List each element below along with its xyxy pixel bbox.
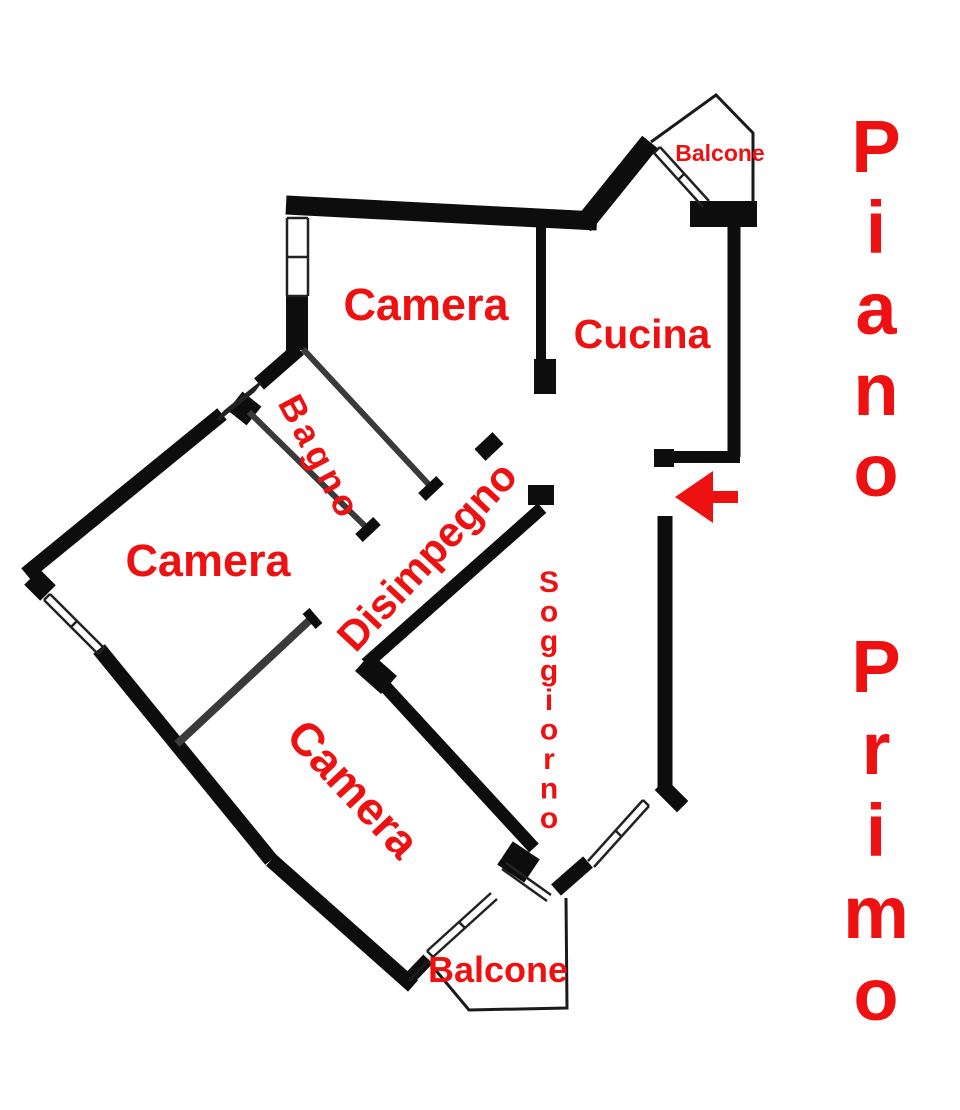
- label-camera-bottom: Camera: [277, 709, 430, 868]
- wall-nw-exterior-a: [259, 349, 299, 384]
- floor-plan-svg: Camera Cucina Balcone Bagno Camera Disim…: [0, 0, 960, 1110]
- wall-soggiorno-corner: [666, 790, 677, 801]
- label-balcone-top: Balcone: [675, 140, 764, 166]
- entrance-arrow-icon: [675, 471, 738, 523]
- wall-west-corner: [32, 577, 48, 593]
- wall-top: [286, 205, 597, 221]
- label-camera-left: Camera: [125, 535, 291, 586]
- label-camera-top: Camera: [343, 279, 509, 330]
- floor-title-group: Piano Primo: [843, 105, 909, 1036]
- wall-cameras-divider: [177, 618, 312, 744]
- wall-topcamera-door-jamb: [480, 438, 498, 455]
- label-balcone-bottom: Balcone: [428, 949, 568, 990]
- wall-ne-diagonal: [583, 142, 650, 225]
- label-cucina: Cucina: [574, 311, 712, 357]
- wall-sw-exterior-b: [271, 860, 413, 986]
- wall-soggiorno-se-corner: [556, 862, 588, 890]
- floor-title-piano: Piano: [851, 105, 900, 512]
- window-camera-balcony: [427, 893, 497, 957]
- floor-title-primo: Primo: [843, 625, 909, 1036]
- window-sw-exterior: [44, 594, 104, 654]
- wall-camera-east-nub: [505, 853, 532, 871]
- label-soggiorno: Soggiorno: [539, 566, 559, 835]
- window-soggiorno-balcony: [588, 800, 649, 867]
- window-topcamera-left: [287, 218, 308, 296]
